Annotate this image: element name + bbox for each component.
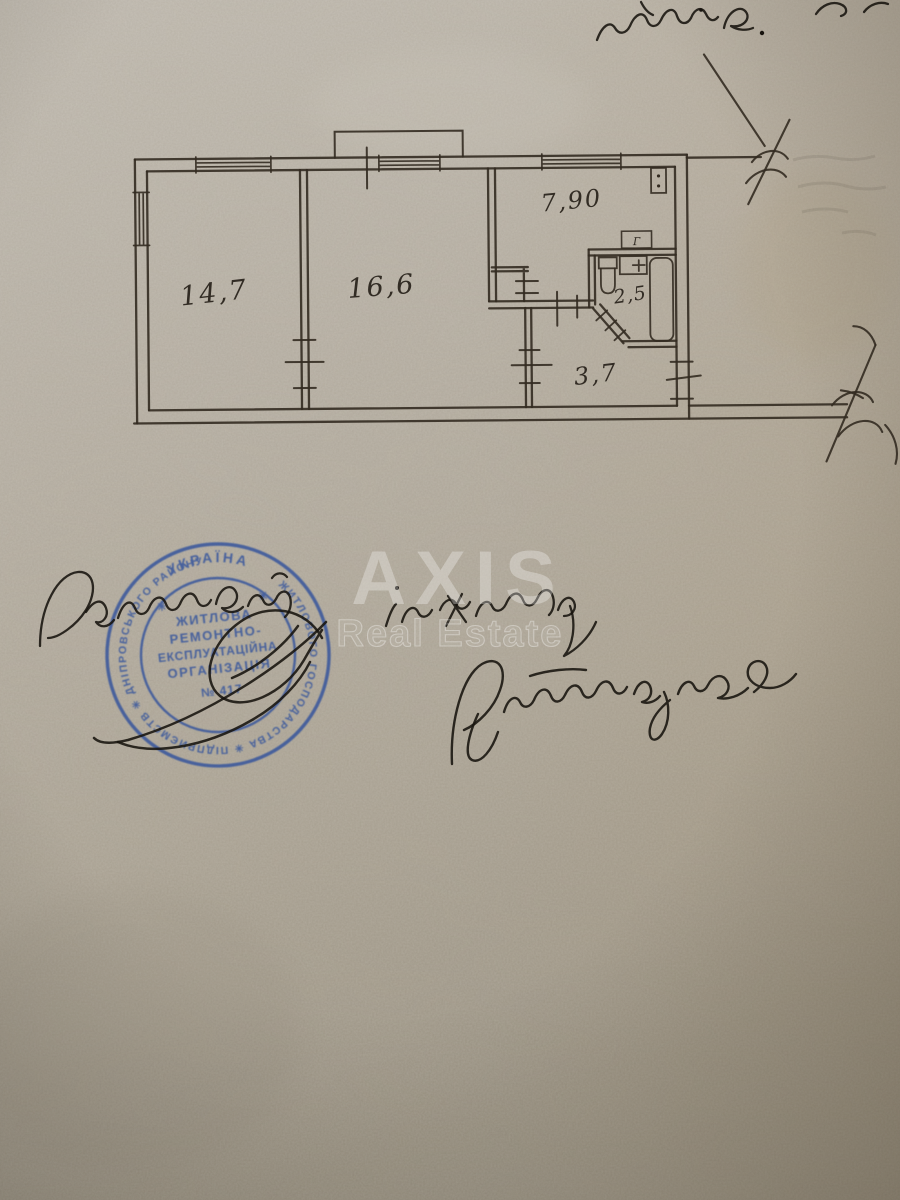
watermark-subtitle: Real Estate xyxy=(337,613,564,655)
vent-label: Г xyxy=(632,235,641,248)
scanned-floorplan-photo: 14,7 16,6 7,90 2,5 3,7 Г УКРАЇНА ЖИТЛОВО… xyxy=(0,0,900,1200)
room2-area-label: 16,6 xyxy=(346,269,416,305)
top-wall-extension xyxy=(687,157,761,158)
document-canvas: 14,7 16,6 7,90 2,5 3,7 Г УКРАЇНА ЖИТЛОВО… xyxy=(0,0,900,1200)
kitchen-area-label: 7,90 xyxy=(540,184,604,218)
hallway-area-label: 3,7 xyxy=(572,358,619,391)
watermark-brand: AXIS xyxy=(351,536,564,621)
watermark: AXIS Real Estate xyxy=(337,536,565,655)
